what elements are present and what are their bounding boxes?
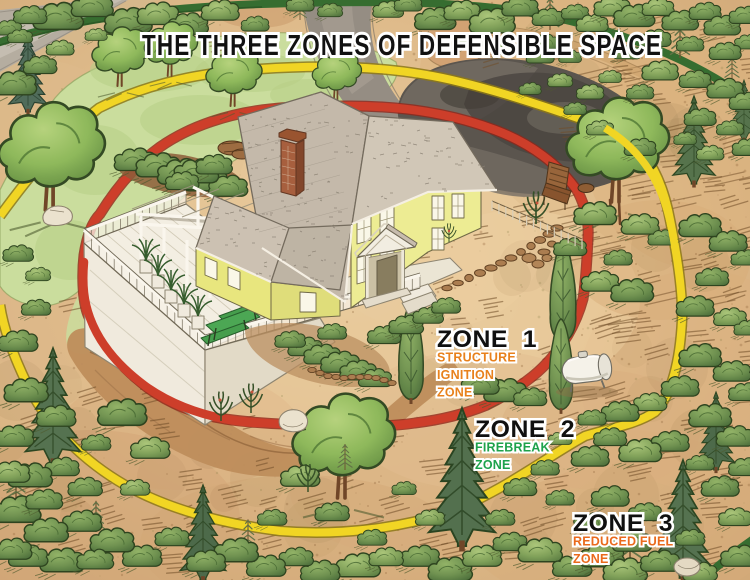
svg-text:ZONE: ZONE [437,386,473,400]
svg-text:ZONE 2: ZONE 2 [475,416,575,443]
svg-text:FIREBREAK: FIREBREAK [475,441,550,455]
svg-text:IGNITION: IGNITION [437,368,494,382]
svg-text:THE THREE ZONES OF DEFENSIBLE: THE THREE ZONES OF DEFENSIBLE SPACE [142,30,662,62]
svg-text:REDUCED FUEL: REDUCED FUEL [573,535,673,549]
svg-text:ZONE 1: ZONE 1 [437,326,537,353]
svg-text:ZONE: ZONE [475,458,511,472]
svg-text:ZONE: ZONE [573,552,609,566]
svg-text:STRUCTURE: STRUCTURE [437,351,516,365]
svg-text:ZONE 3: ZONE 3 [573,510,673,537]
